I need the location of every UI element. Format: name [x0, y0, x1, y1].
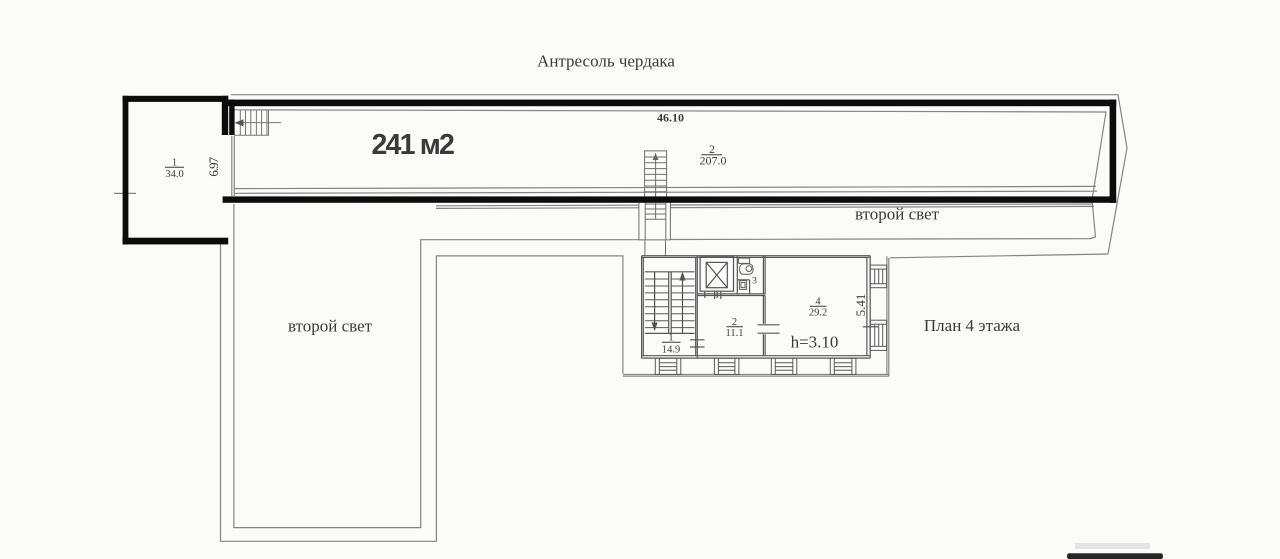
svg-text:5.41: 5.41	[853, 294, 868, 317]
svg-text:Антресоль чердака: Антресоль чердака	[537, 52, 675, 71]
svg-text:14.9: 14.9	[662, 345, 680, 356]
svg-text:34.0: 34.0	[165, 169, 183, 180]
svg-text:План 4 этажа: План 4 этажа	[924, 316, 1021, 335]
svg-text:207.0: 207.0	[700, 154, 727, 168]
svg-text:241 м2: 241 м2	[372, 129, 455, 161]
svg-text:11.1: 11.1	[726, 328, 744, 339]
svg-text:второй свет: второй свет	[288, 317, 373, 336]
svg-text:6.97: 6.97	[206, 156, 221, 176]
svg-text:h=3.10: h=3.10	[791, 333, 839, 352]
svg-text:46.10: 46.10	[657, 111, 684, 125]
svg-text:второй свет: второй свет	[855, 205, 940, 224]
svg-text:3: 3	[752, 277, 757, 287]
svg-text:29.2: 29.2	[809, 308, 827, 319]
